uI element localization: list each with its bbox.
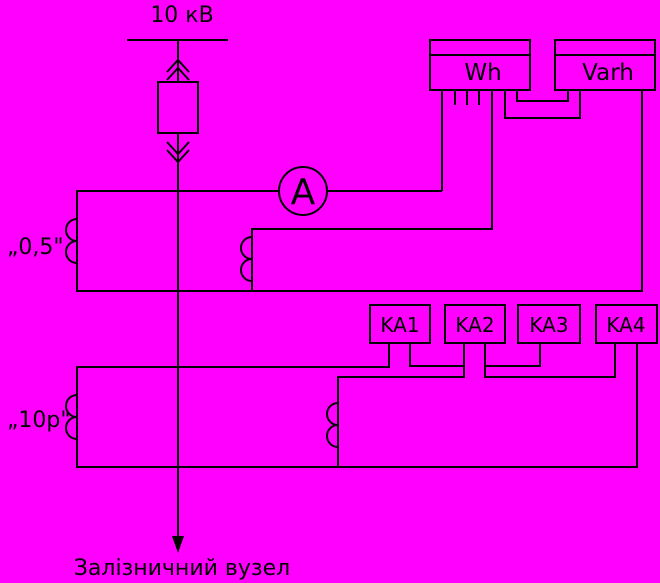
relay-label-ka2: KA2 bbox=[455, 313, 494, 337]
schematic-diagram: 10 кВ Залізничний вузел Wh Varh A „0,5" … bbox=[0, 0, 660, 583]
relay-label-ka4: KA4 bbox=[606, 313, 645, 337]
ammeter-label: A bbox=[291, 172, 316, 213]
wh-meter-label: Wh bbox=[464, 60, 501, 86]
busbar-voltage-label: 10 кВ bbox=[150, 3, 213, 28]
ct-class-protection-label: „10р" bbox=[7, 408, 70, 433]
ct-class-metering-label: „0,5" bbox=[7, 235, 64, 260]
varh-meter-label: Varh bbox=[582, 60, 634, 86]
load-label: Залізничний вузел bbox=[74, 556, 290, 581]
relay-label-ka3: KA3 bbox=[529, 313, 568, 337]
relay-label-ka1: KA1 bbox=[380, 313, 419, 337]
